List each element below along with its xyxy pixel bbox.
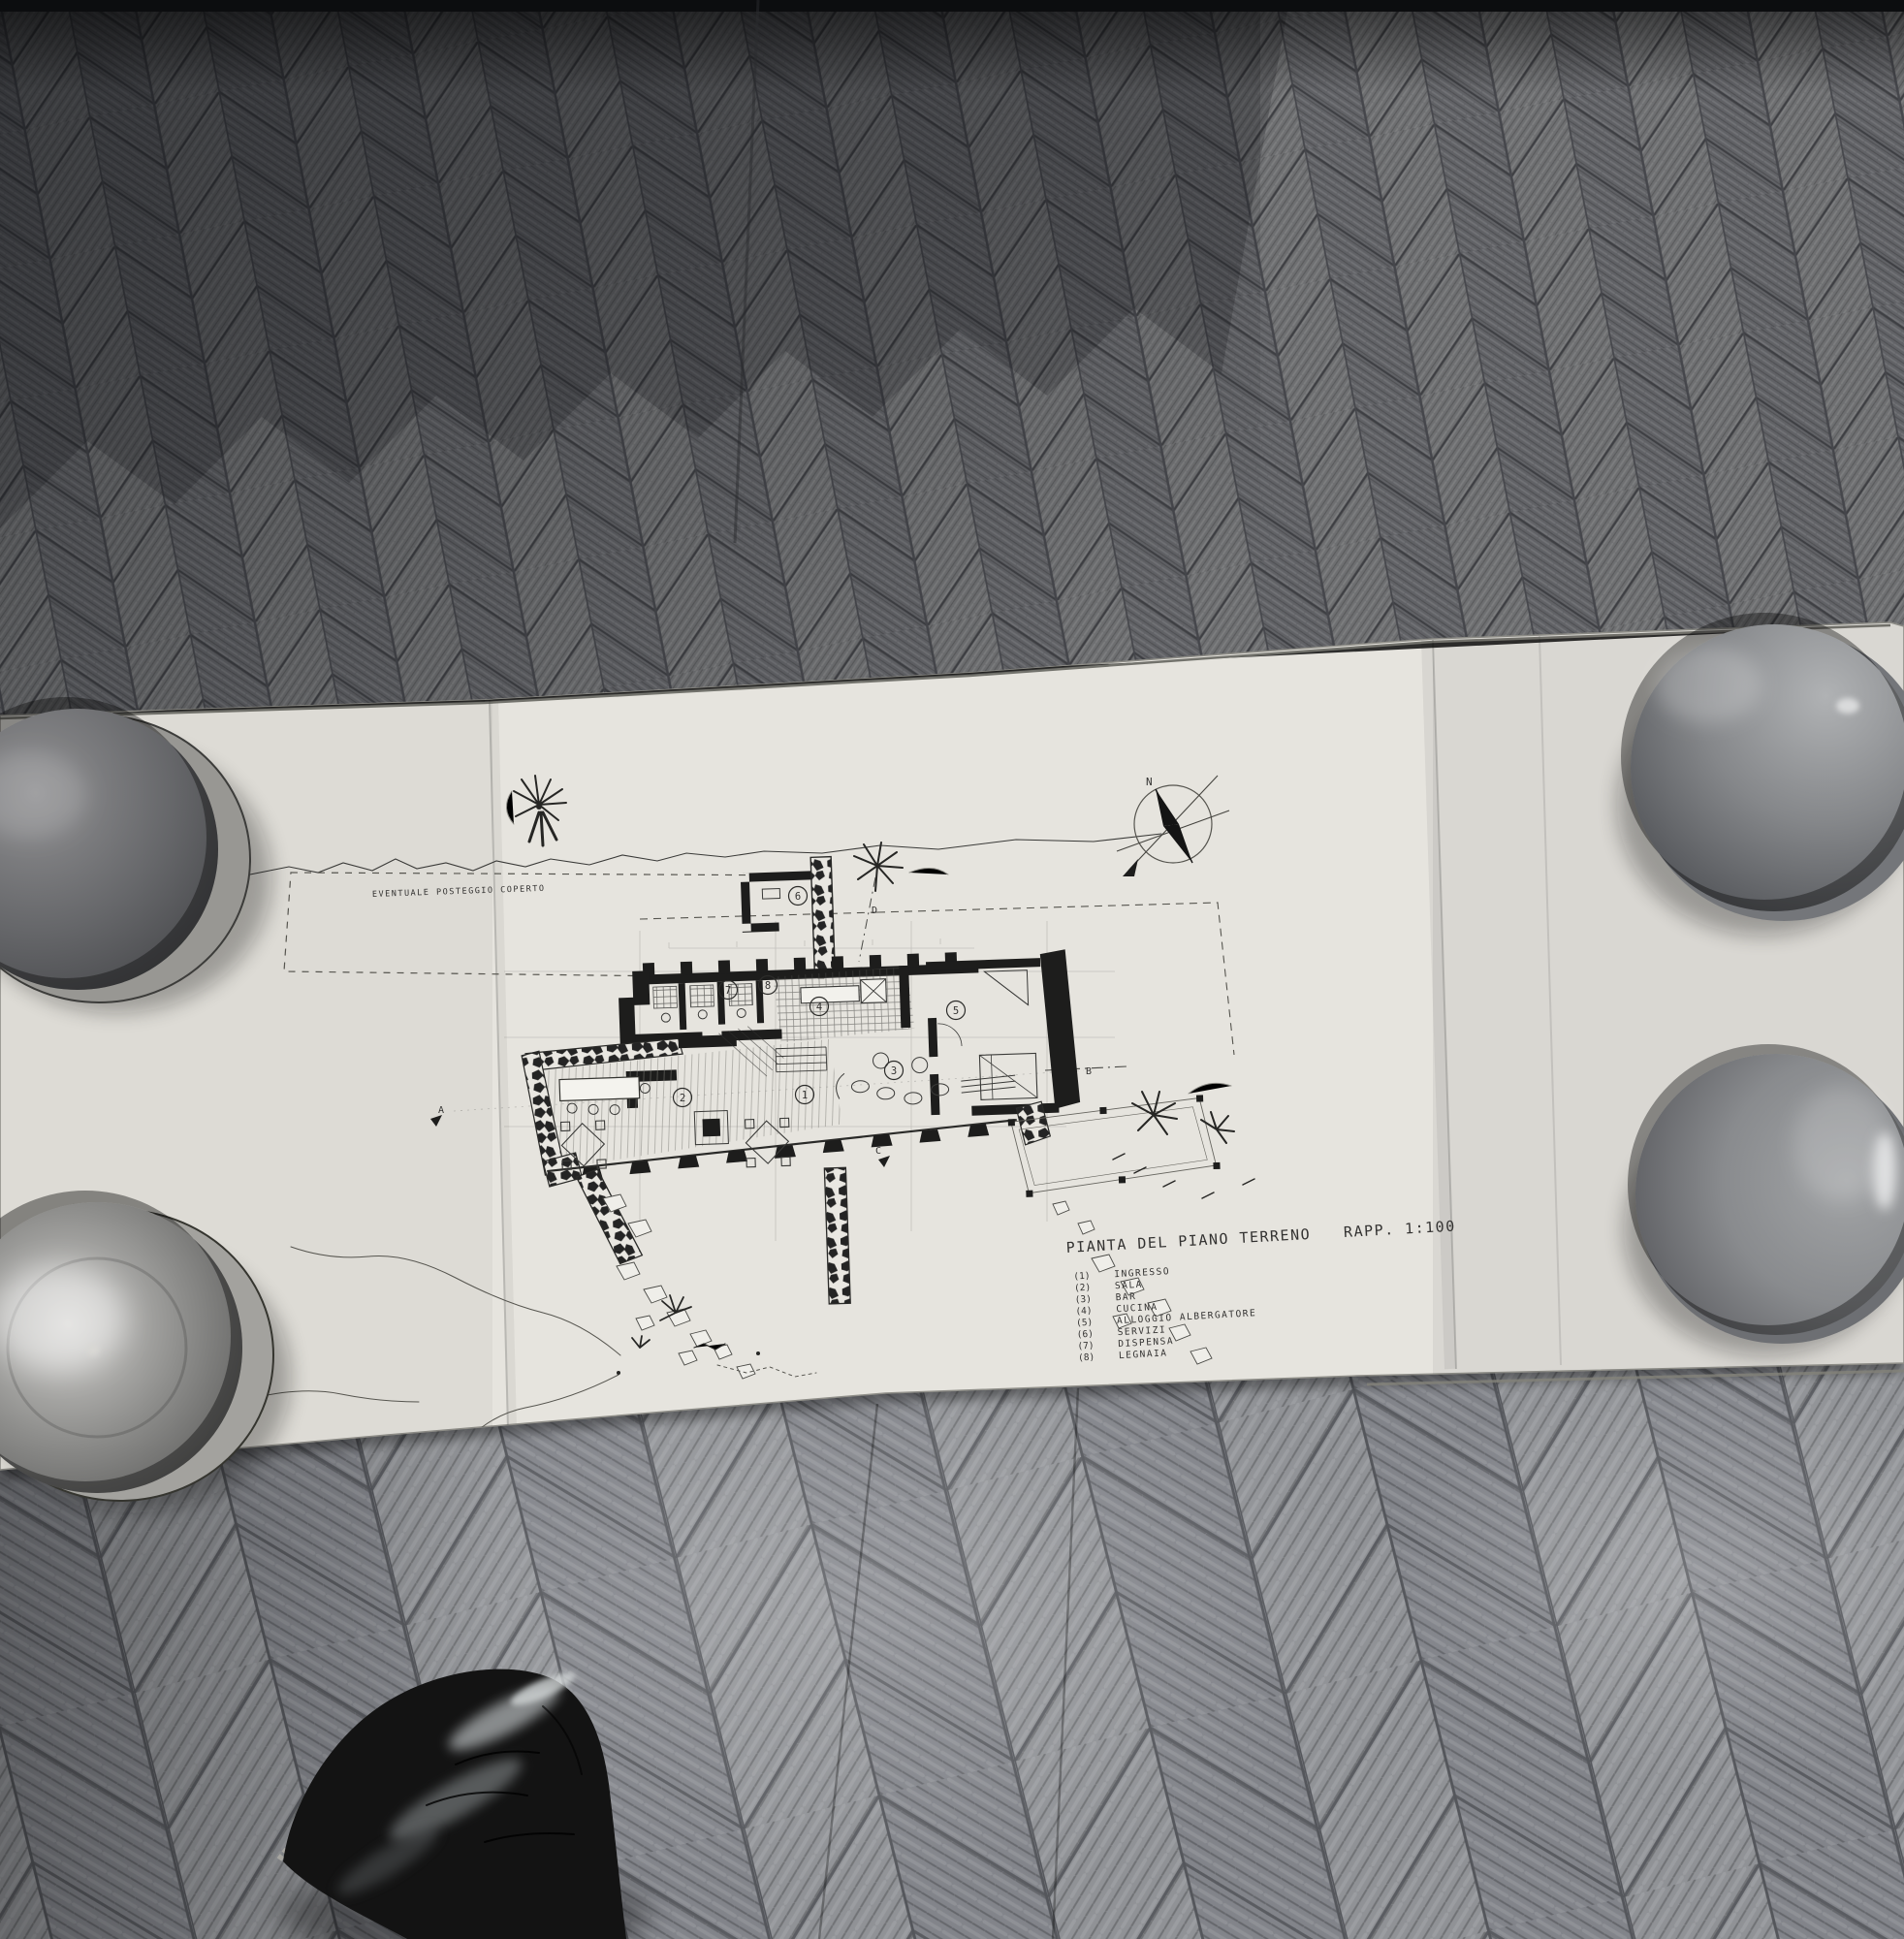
legend-num-3: (3): [1074, 1294, 1092, 1306]
legend-num-5: (5): [1076, 1318, 1094, 1329]
legend-num-4: (4): [1075, 1306, 1093, 1318]
bowl-top-right: [1617, 613, 1904, 936]
section-marker-a: A: [438, 1105, 444, 1116]
room-number-1: 1: [802, 1090, 808, 1101]
room-number-2: 2: [680, 1093, 685, 1104]
section-marker-c: C: [875, 1146, 881, 1157]
stone-wall-lower: [824, 1167, 850, 1304]
room-number-8: 8: [765, 980, 771, 992]
room-number-7: 7: [725, 985, 731, 997]
section-marker-d: D: [872, 906, 877, 916]
legend-num-7: (7): [1077, 1341, 1095, 1352]
stone-wall-upper: [810, 857, 835, 974]
legend-num-6: (6): [1076, 1329, 1094, 1341]
legend-num-2: (2): [1074, 1283, 1092, 1294]
legend-label-2: SALA: [1115, 1280, 1143, 1292]
sala-pillar: [703, 1119, 721, 1137]
bowl-right-middle: [1624, 1044, 1904, 1355]
room-number-3: 3: [891, 1065, 897, 1077]
room-number-5: 5: [953, 1005, 959, 1017]
photo-scene: EVENTUALE POSTEGGIO COPERTO: [0, 0, 1904, 1939]
room-number-4: 4: [816, 1001, 822, 1013]
section-marker-b: B: [1086, 1066, 1092, 1077]
legend-num-1: (1): [1073, 1271, 1091, 1283]
legend-num-8: (8): [1078, 1352, 1095, 1364]
room-number-6: 6: [795, 891, 801, 903]
legend-label-3: BAR: [1115, 1291, 1136, 1303]
floor-top-edge: [0, 0, 1904, 12]
compass-north-label: N: [1146, 776, 1153, 788]
floor-top-strip: [0, 0, 1904, 92]
